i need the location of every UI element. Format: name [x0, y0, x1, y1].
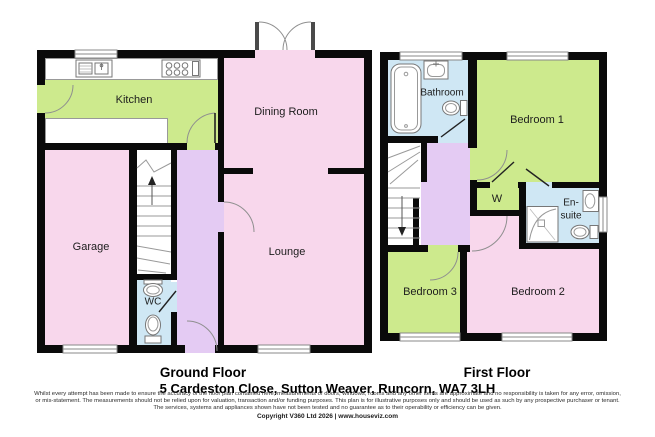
copyright-line: Copyright V360 Ltd 2026 | www.houseviz.c… [0, 413, 655, 420]
dining-room-label: Dining Room [254, 106, 318, 118]
wc-label: WC [145, 297, 162, 308]
wardrobe-label: W [492, 193, 502, 205]
room-bedroom-2 [477, 216, 519, 249]
bedroom1-label: Bedroom 1 [510, 114, 564, 126]
bathroom-label: Bathroom [420, 88, 463, 99]
hob-icon [162, 60, 200, 77]
disclaimer-line-3: The services, systems and appliances sho… [0, 405, 655, 412]
ensuite-label: En-suite [553, 198, 589, 223]
kitchen-sink-icon [76, 60, 112, 77]
ground-floor-plan [37, 22, 372, 353]
ground-floor-title: Ground Floor [160, 365, 246, 380]
ensuite-toilet-icon [571, 225, 598, 239]
wc-toilet-icon [145, 315, 161, 343]
room-landing [427, 143, 470, 245]
french-door-posts [255, 22, 315, 50]
room-hallway [177, 150, 218, 345]
room-lounge [224, 174, 364, 345]
garage-label: Garage [73, 241, 110, 253]
bedroom3-label: Bedroom 3 [403, 286, 457, 298]
wc-sink-icon [144, 280, 163, 297]
bathroom-sink-icon [424, 61, 448, 79]
ground-floor-rooms [37, 50, 364, 353]
stairs-ground [137, 150, 171, 274]
kitchen-label: Kitchen [116, 94, 153, 106]
floorplan-image: Kitchen Dining Room Garage Lounge WC Bat… [0, 0, 655, 437]
lounge-label: Lounge [269, 246, 306, 258]
bedroom2-label: Bedroom 2 [511, 286, 565, 298]
bath-icon [391, 64, 421, 133]
bathroom-toilet-icon [443, 101, 468, 116]
first-floor-title: First Floor [464, 365, 531, 380]
